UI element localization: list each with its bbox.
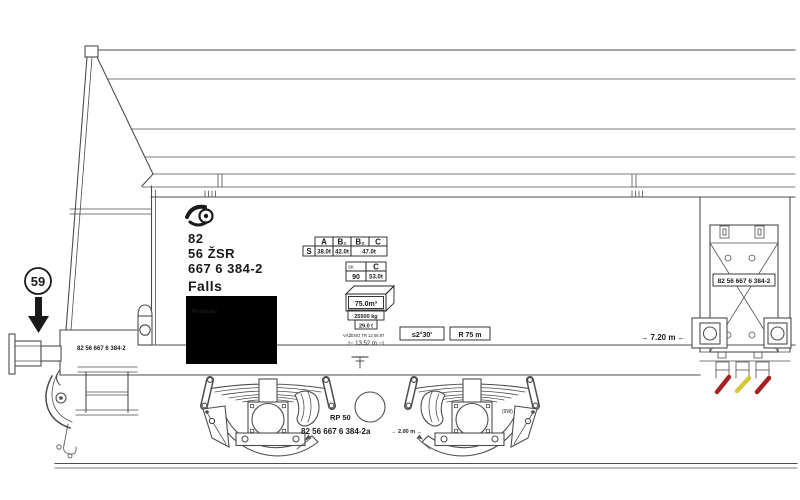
bogie-note: (9W) xyxy=(502,409,513,415)
handbrake-wheel xyxy=(138,305,152,345)
row-label-s: S xyxy=(306,247,312,256)
screw-coupling xyxy=(46,370,76,458)
center-panel-number: 82 56 667 6 384-2 xyxy=(718,278,771,285)
handle-yellow xyxy=(737,378,749,391)
inscription-panel: Přechodky xyxy=(186,296,277,364)
radius-sign: R 75 m xyxy=(450,327,490,340)
load-c: 47.0t xyxy=(362,250,376,256)
drawing-canvas: RP 50 (9W) 82 56 667 6 384-2a → 2.00 m ←… xyxy=(0,0,800,500)
hinge-ticks xyxy=(205,191,643,197)
zsr-logo xyxy=(187,207,213,225)
wheelset-1 xyxy=(202,378,334,456)
pivot-dimension: → 7.20 m ← xyxy=(640,333,685,342)
volume-sign: 75.0m³ xyxy=(346,286,394,311)
handle-red-1 xyxy=(717,377,729,392)
owner-code: 56 ŽSR xyxy=(188,246,235,261)
sk-country: SK xyxy=(348,265,354,270)
end-slope xyxy=(97,57,153,174)
brake-mass: 29.0 t xyxy=(359,324,373,330)
sk-load-table: SK C 90 53.0t xyxy=(346,262,386,281)
col-b2: B₂ xyxy=(355,238,365,247)
down-arrow xyxy=(28,297,49,333)
left-buffer xyxy=(9,334,61,374)
handle-red-2 xyxy=(757,378,769,392)
length-dimension: ⊢ 13.52 m ⊣ xyxy=(348,340,383,347)
tare-sign: 25500 kg 29.0 t xyxy=(348,310,384,330)
load-ab: 38.0t xyxy=(317,250,331,256)
wagon-technical-drawing: RP 50 (9W) 82 56 667 6 384-2a → 2.00 m ←… xyxy=(0,0,800,500)
svg-text:R 75 m: R 75 m xyxy=(459,332,482,339)
brake-type-label: RP 50 xyxy=(330,413,351,422)
route-class-marker: 59 xyxy=(25,268,51,333)
load-b1: 42.0t xyxy=(335,250,349,256)
end-ladder xyxy=(76,367,138,415)
rail-line xyxy=(55,464,797,469)
end-post-cap xyxy=(85,46,98,57)
col-b1: B₁ xyxy=(337,238,347,247)
owner-number-block: 82 56 ŽSR 667 6 384-2 Falls xyxy=(188,231,263,294)
angle-sign: ≤2°30' xyxy=(400,327,444,340)
door-lock-box-left xyxy=(692,318,727,348)
tare-weight: 25500 kg xyxy=(354,314,377,320)
sk-col-c: C xyxy=(373,263,379,272)
uncoupling-handles xyxy=(716,362,769,392)
bogie-pivot-circle xyxy=(355,392,385,422)
jack-symbol xyxy=(352,357,368,368)
col-a: A xyxy=(321,238,327,247)
hopper-body xyxy=(85,46,795,187)
wheelbase-dimension: → 2.00 m ← xyxy=(391,429,422,435)
svg-text:≤2°30': ≤2°30' xyxy=(412,331,432,339)
exchange-code: 82 xyxy=(188,231,203,246)
col-c: C xyxy=(375,238,381,247)
weighing-note: VÁŽENO TR 12.06.97 xyxy=(343,333,385,338)
bogie-number: 82 56 667 6 384-2a xyxy=(301,427,371,436)
wheelset-2 xyxy=(406,378,538,456)
volume-value: 75.0m³ xyxy=(355,301,378,308)
class-name: Falls xyxy=(188,278,222,294)
frame-number: 82 56 667 6 384-2 xyxy=(77,346,126,352)
center-equipment-section: 82 56 667 6 384-2 xyxy=(692,197,791,392)
sk-load: 53.0t xyxy=(369,275,383,281)
serial-number: 667 6 384-2 xyxy=(188,261,263,276)
sk-speed: 90 xyxy=(352,274,360,281)
load-limit-table: A B₁ B₂ C S 38.0t 42.0t 47.0t xyxy=(303,237,387,256)
inscription-panel-title: Přechodky xyxy=(192,309,218,315)
left-end-post xyxy=(66,57,151,330)
door-lock-box-right xyxy=(764,318,791,348)
route-class-number: 59 xyxy=(31,274,45,289)
